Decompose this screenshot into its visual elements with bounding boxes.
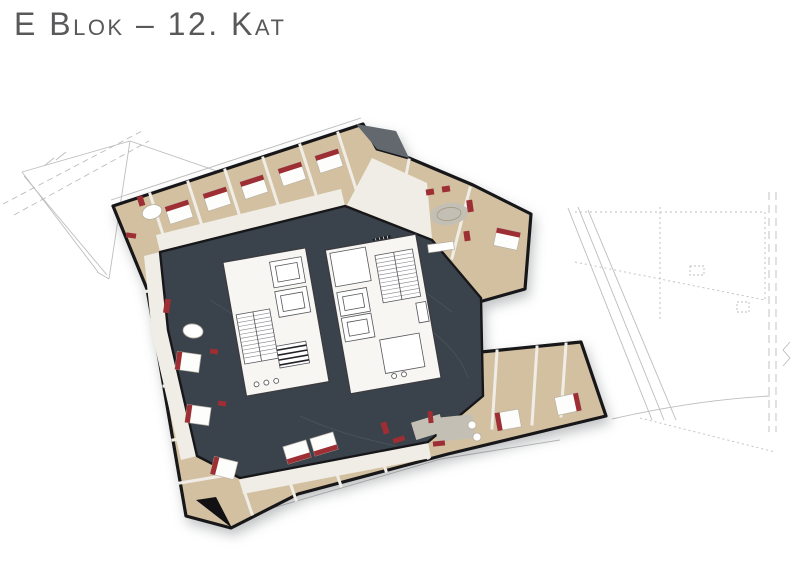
bed — [495, 409, 522, 431]
bed — [175, 351, 201, 372]
floor-plan-rendering — [0, 0, 800, 578]
red-furniture-accent — [426, 188, 435, 195]
rendered-floor-plate — [113, 124, 606, 528]
stairs — [375, 249, 421, 303]
armchair — [468, 421, 476, 429]
floor-plan-page: E Blok – 12. Kat — [0, 0, 800, 578]
bed — [185, 404, 211, 425]
red-furniture-accent — [442, 185, 451, 192]
service-shaft — [276, 341, 309, 368]
armchair — [473, 433, 481, 441]
